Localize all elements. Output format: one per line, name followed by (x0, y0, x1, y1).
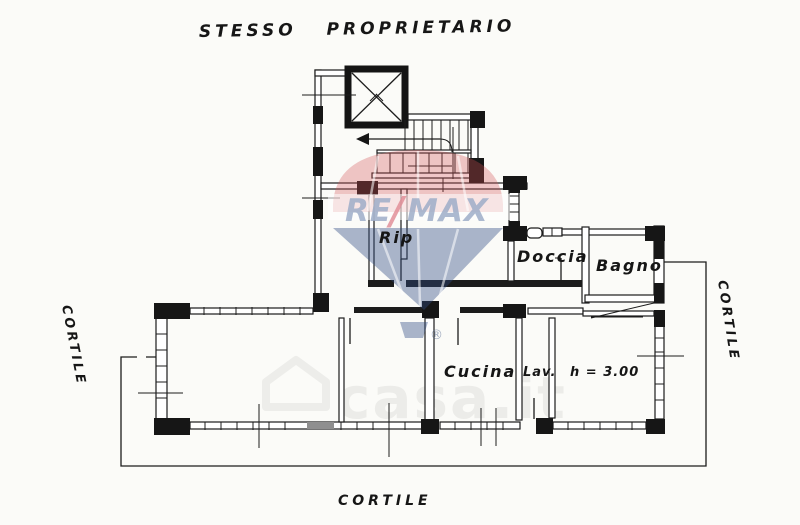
gray-window-block (307, 422, 334, 429)
elevator-icon (348, 69, 405, 125)
remax-text-max: MAX (407, 193, 490, 229)
courtyard-label-bottom: CORTILE (338, 493, 432, 509)
floorplan-page: casa.it (0, 0, 800, 525)
stair-treads-upper (405, 120, 468, 150)
courtyard-label-left: CORTILE (58, 304, 88, 387)
room-label-bagno: Bagno (596, 256, 663, 275)
courtyard-label-right: CORTILE (714, 279, 742, 362)
room-label-doccia: Doccia (517, 247, 589, 266)
room-label-rip: Rip (379, 228, 414, 247)
remax-text-slash: / (386, 189, 407, 233)
page-title: STESSO PROPRIETARIO (199, 16, 516, 42)
registered-trademark-symbol: ® (430, 328, 443, 343)
room-label-lav: Lav. (523, 365, 556, 380)
height-annotation: h = 3.00 (570, 365, 639, 380)
remax-text-re: RE (345, 193, 392, 229)
remax-watermark: RE / MAX ® (328, 150, 510, 343)
house-icon (266, 360, 326, 407)
remax-balloon-basket (400, 322, 428, 338)
room-label-cucina: Cucina (444, 362, 516, 381)
floorplan-drawing: casa.it (0, 0, 800, 525)
